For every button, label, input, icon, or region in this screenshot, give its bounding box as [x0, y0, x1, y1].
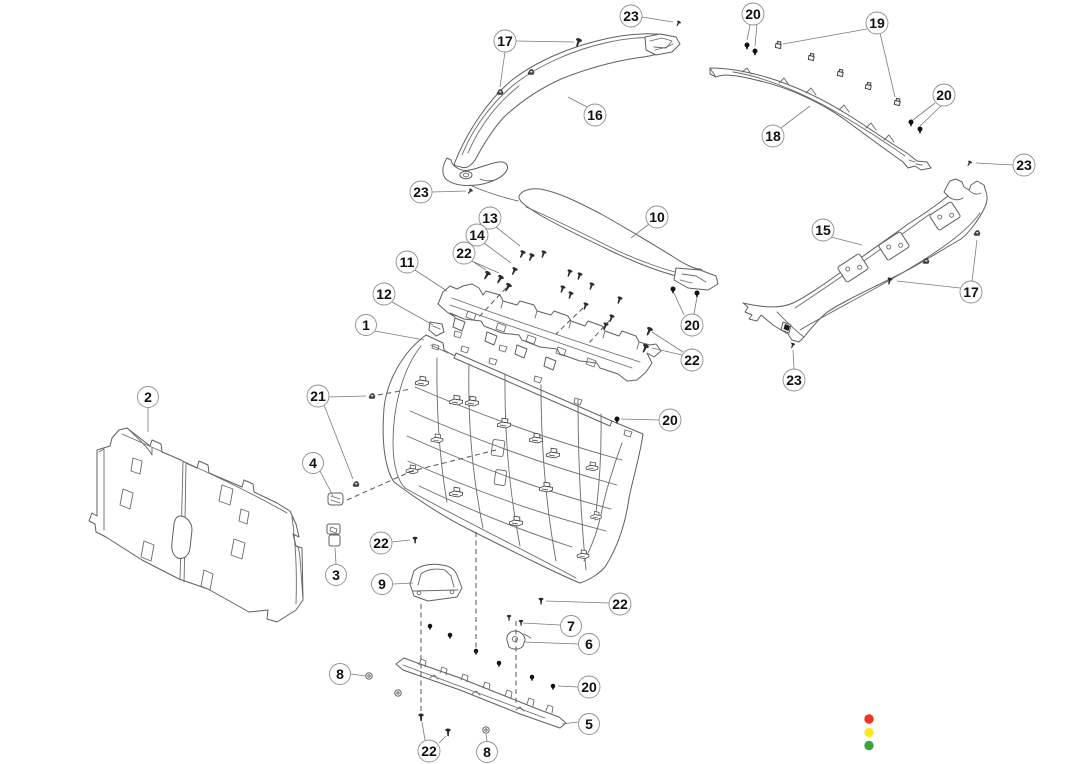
- svg-text:2: 2: [144, 389, 152, 405]
- svg-text:22: 22: [421, 743, 437, 759]
- svg-text:20: 20: [936, 87, 952, 103]
- svg-text:4: 4: [309, 455, 317, 471]
- svg-text:10: 10: [649, 209, 665, 225]
- svg-text:1: 1: [362, 317, 370, 333]
- svg-text:12: 12: [376, 286, 392, 302]
- svg-text:22: 22: [612, 596, 628, 612]
- svg-text:8: 8: [483, 744, 491, 760]
- svg-text:18: 18: [765, 128, 781, 144]
- svg-text:15: 15: [815, 222, 831, 238]
- svg-text:3: 3: [332, 567, 340, 583]
- svg-text:14: 14: [469, 227, 485, 243]
- svg-text:20: 20: [581, 679, 597, 695]
- svg-text:21: 21: [310, 388, 326, 404]
- svg-text:5: 5: [585, 716, 593, 732]
- svg-text:9: 9: [378, 576, 386, 592]
- svg-text:19: 19: [869, 15, 885, 31]
- svg-text:23: 23: [623, 8, 639, 24]
- svg-text:22: 22: [684, 352, 700, 368]
- svg-text:22: 22: [373, 535, 389, 551]
- svg-text:23: 23: [1016, 157, 1032, 173]
- svg-text:20: 20: [662, 412, 678, 428]
- svg-text:17: 17: [963, 284, 979, 300]
- svg-text:11: 11: [400, 254, 415, 270]
- svg-text:20: 20: [745, 6, 761, 22]
- svg-text:13: 13: [482, 210, 498, 226]
- svg-text:22: 22: [456, 245, 472, 261]
- svg-text:7: 7: [567, 618, 575, 634]
- svg-text:23: 23: [786, 372, 802, 388]
- svg-text:8: 8: [336, 666, 344, 682]
- svg-text:23: 23: [413, 184, 429, 200]
- svg-text:6: 6: [585, 636, 593, 652]
- svg-text:17: 17: [497, 33, 513, 49]
- svg-text:16: 16: [587, 107, 603, 123]
- svg-text:20: 20: [684, 317, 700, 333]
